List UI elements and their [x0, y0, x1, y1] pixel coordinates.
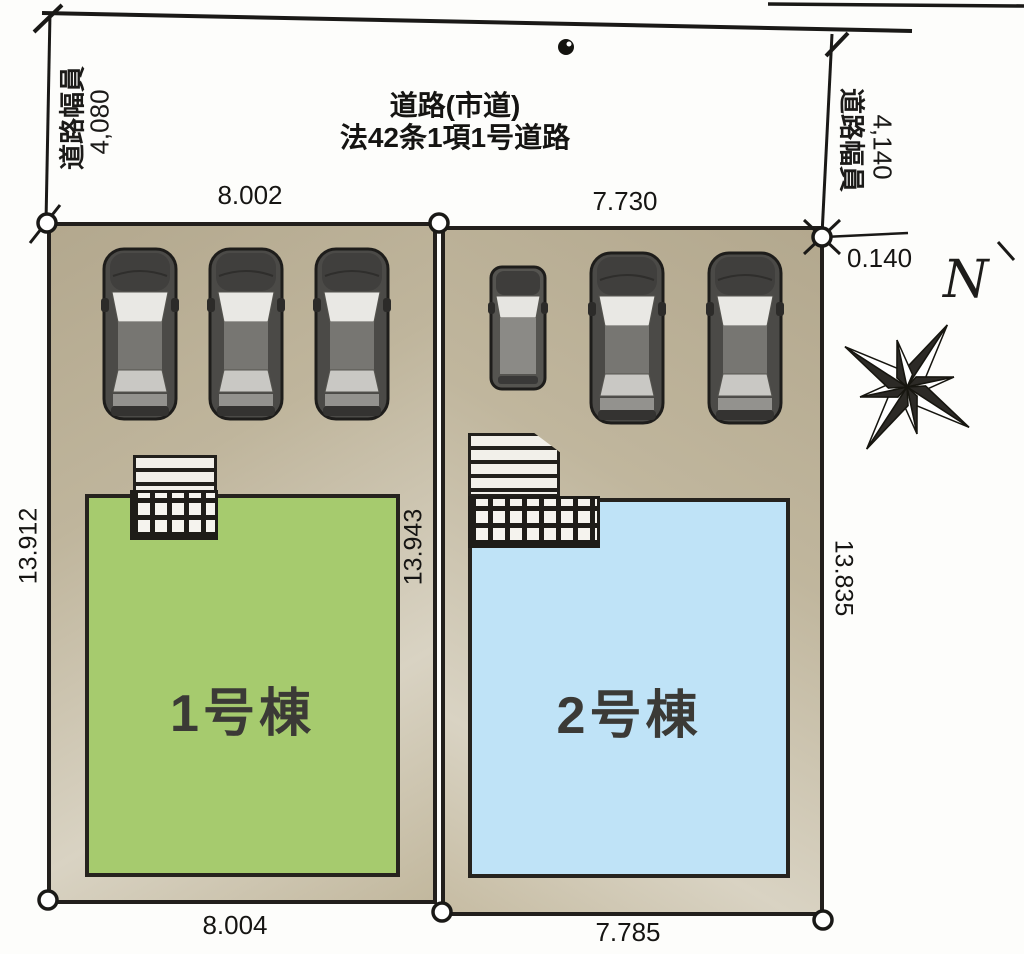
tick-mark [34, 5, 62, 32]
tick-mark [826, 33, 848, 56]
building-2: 2号棟 [468, 498, 790, 878]
building-2-label: 2号棟 [472, 673, 786, 748]
compass-rose-icon [815, 285, 1009, 480]
dim-corner-offset: 0.140 [847, 243, 912, 274]
road-width-value-right: 4,140 [867, 114, 898, 179]
entrance-porch-2 [468, 496, 600, 548]
dim-lot2-bottom: 7.785 [563, 917, 693, 948]
entrance-stairs-2 [468, 433, 560, 497]
north-label: N [941, 250, 990, 310]
road-point-highlight [567, 42, 572, 47]
parking-row-lot-2 [488, 250, 784, 431]
car-icon [101, 246, 179, 427]
dim-lot2-side: 13.835 [829, 540, 858, 616]
car-icon [588, 250, 666, 431]
car-icon [488, 264, 548, 397]
road-point-marker [558, 39, 574, 55]
parking-row-lot-1 [101, 246, 391, 427]
road-name-line2: 法42条1項1号道路 [235, 116, 675, 156]
dim-divider-side: 13.943 [400, 509, 429, 585]
car-icon [313, 246, 391, 427]
compass: N [815, 235, 1015, 480]
road-edge-line [42, 13, 912, 31]
road-width-line-left [46, 13, 50, 222]
dim-lot1-top: 8.002 [185, 180, 315, 211]
dim-lot1-bottom: 8.004 [170, 910, 300, 941]
dim-lot1-side: 13.912 [15, 508, 44, 584]
top-edge-line [768, 4, 1024, 6]
car-icon [207, 246, 285, 427]
building-1: 1号棟 [85, 494, 400, 877]
building-1-label: 1号棟 [89, 671, 396, 746]
entrance-porch-1 [130, 490, 218, 540]
entrance-stairs-1 [133, 455, 217, 493]
dim-lot2-top: 7.730 [560, 186, 690, 217]
road-width-value-left: 4,080 [85, 89, 116, 154]
car-icon [706, 250, 784, 431]
road-width-line-right [822, 34, 832, 235]
